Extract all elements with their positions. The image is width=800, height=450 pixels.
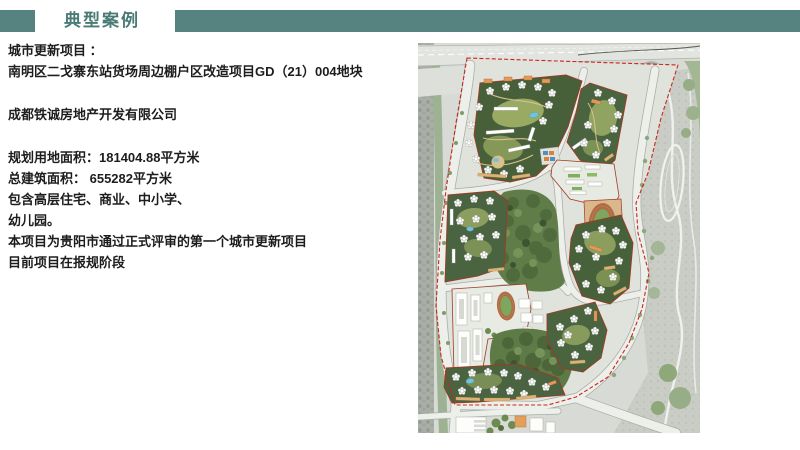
- site-master-plan: [418, 43, 700, 433]
- project-contains-2: 幼儿园。: [8, 210, 408, 231]
- project-floor-area: 总建筑面积： 655282平方米: [8, 168, 408, 189]
- project-status-1: 本项目为贵阳市通过正式评审的第一个城市更新项目: [8, 231, 408, 252]
- project-status-2: 目前项目在报规阶段: [8, 252, 408, 273]
- project-developer: 成都铁诚房地产开发有限公司: [8, 104, 408, 125]
- master-plan-svg: [418, 43, 700, 433]
- residential-parcel-c: [445, 191, 508, 282]
- slide: { "header": { "title": "典型案例", "accent_c…: [0, 0, 800, 450]
- project-label: 城市更新项目 ：: [8, 40, 408, 61]
- project-land-area: 规划用地面积：181404.88平方米: [8, 147, 408, 168]
- project-contains-1: 包含高层住宅、商业、中小学、: [8, 189, 408, 210]
- project-name: 南明区二戈寨东站货场周边棚户区改造项目GD（21）004地块: [8, 61, 408, 82]
- header-accent-block: [0, 10, 35, 32]
- header-accent-bar: [175, 10, 800, 32]
- project-info: 城市更新项目 ： 南明区二戈寨东站货场周边棚户区改造项目GD（21）004地块 …: [8, 40, 408, 273]
- page-title: 典型案例: [64, 10, 140, 32]
